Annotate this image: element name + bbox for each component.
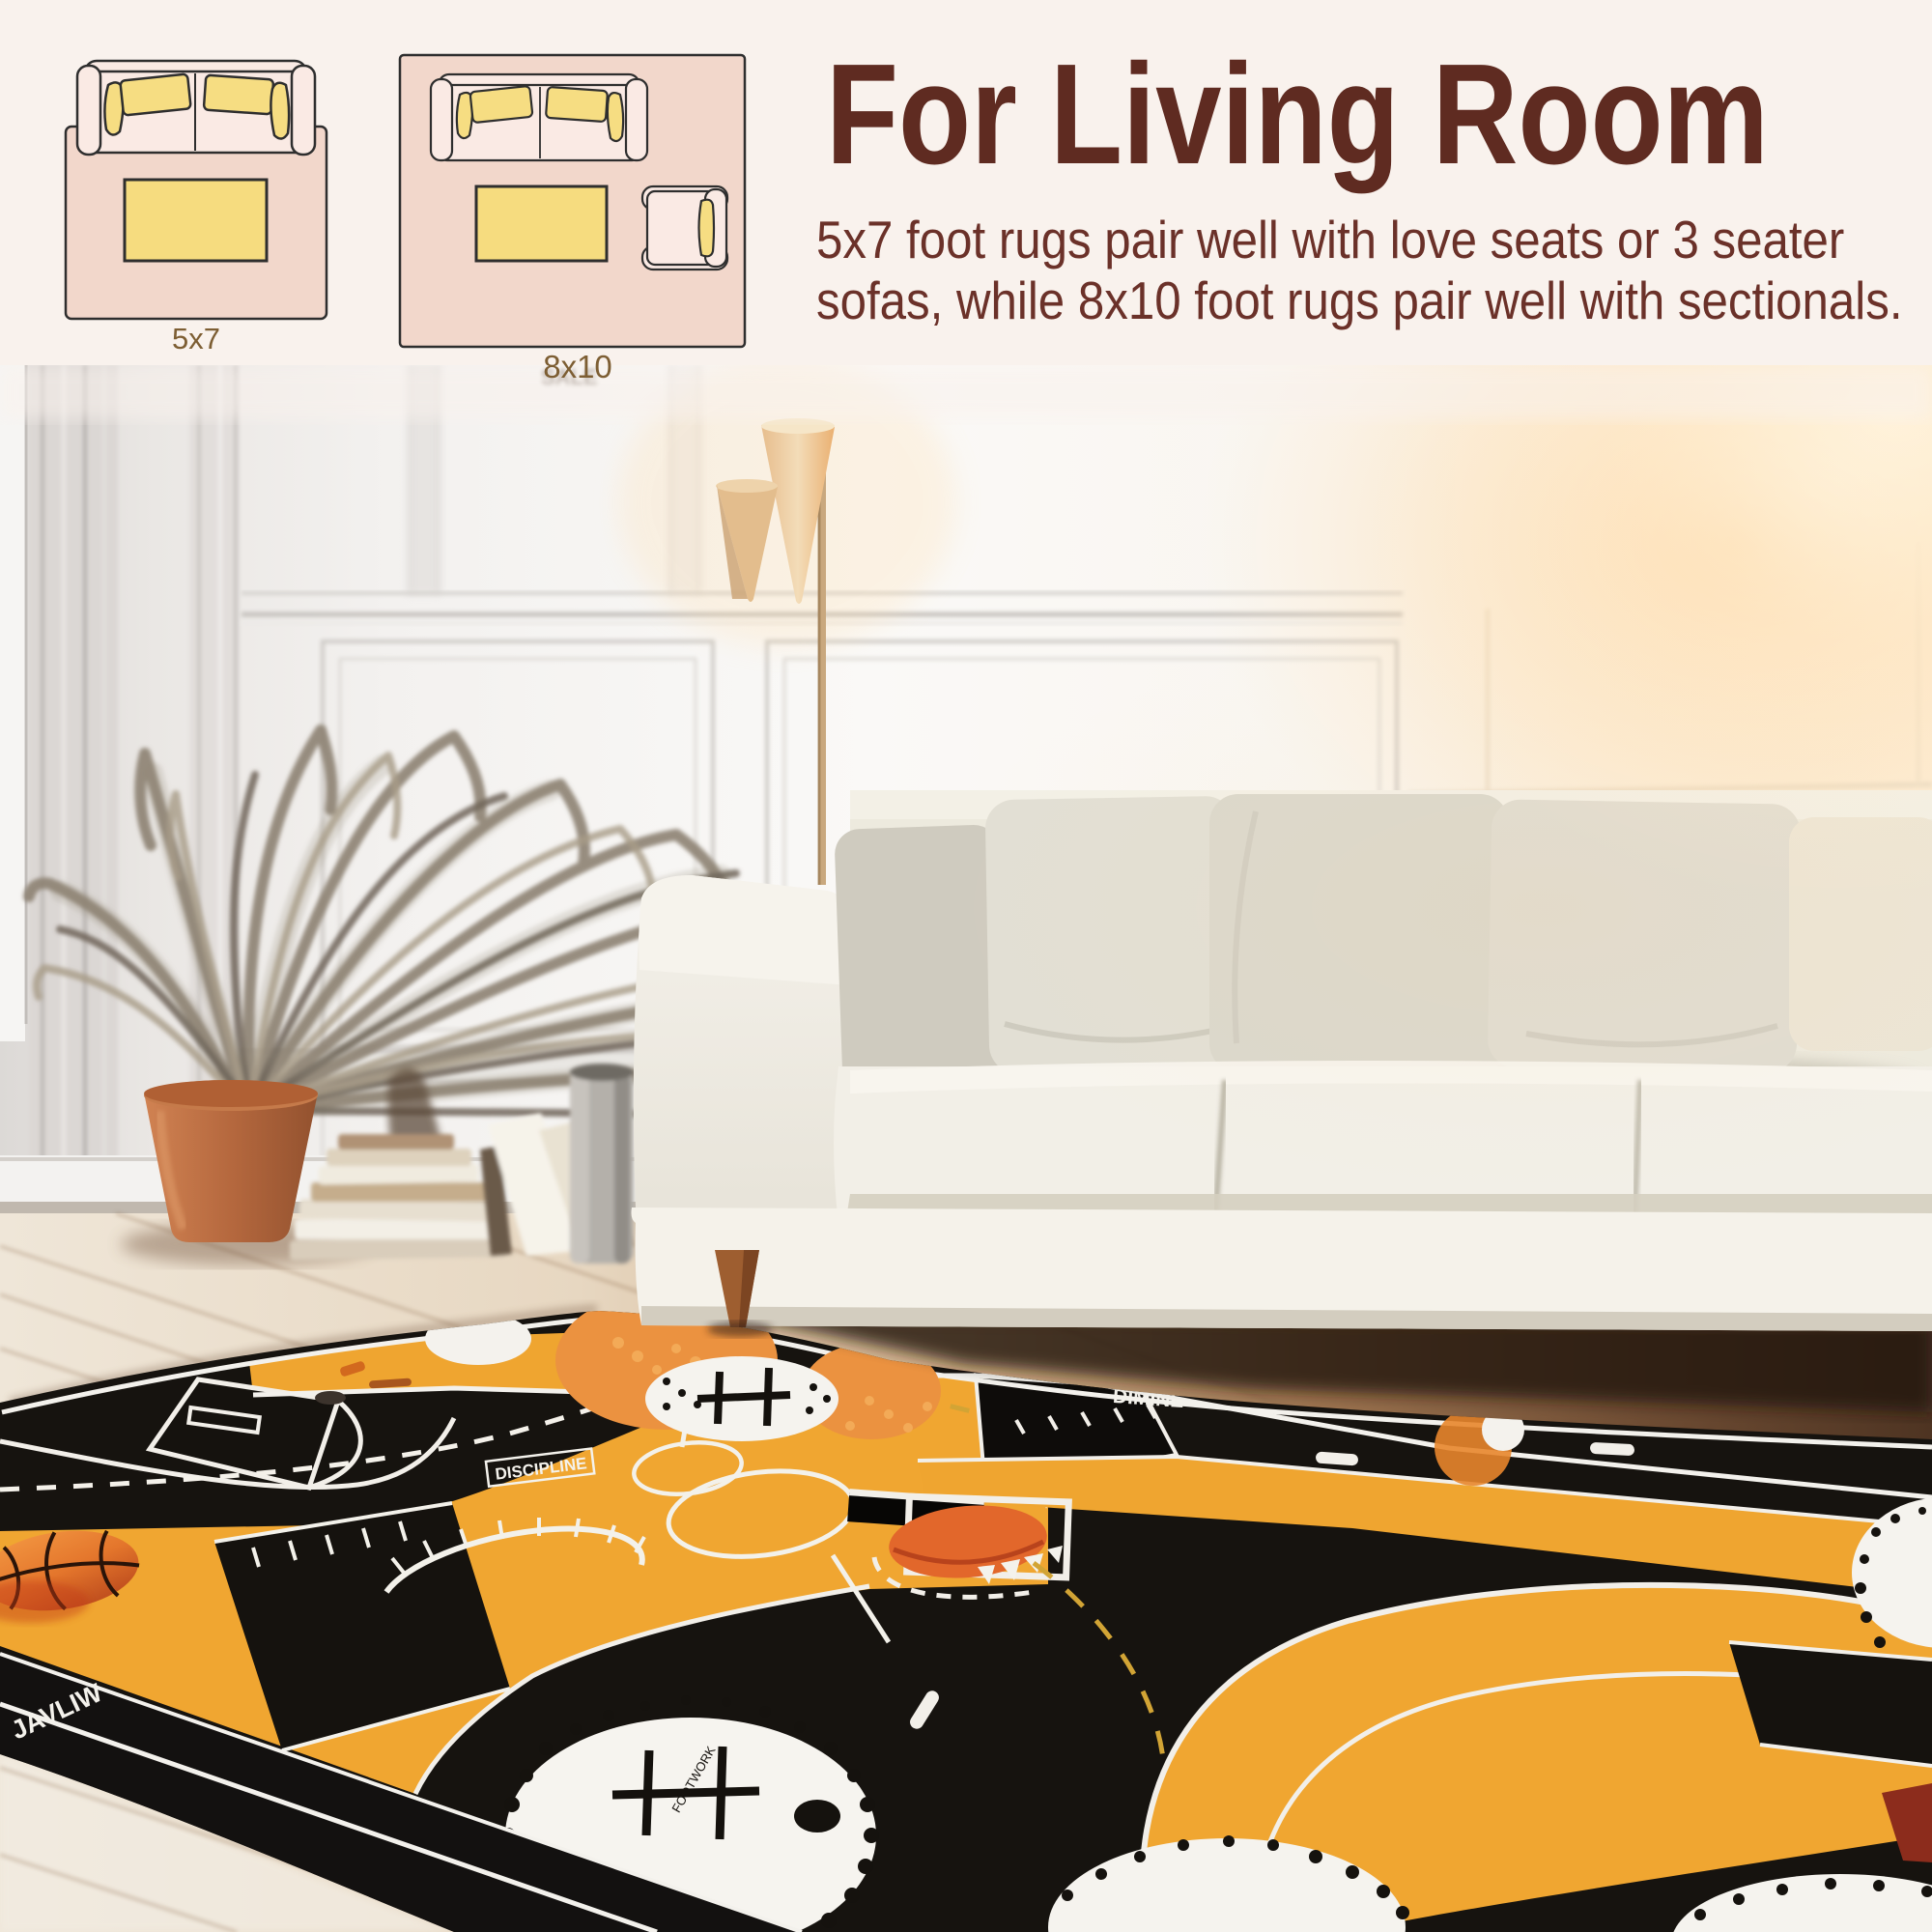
- svg-text:8x10: 8x10: [543, 349, 612, 384]
- svg-text:5x7: 5x7: [172, 322, 220, 355]
